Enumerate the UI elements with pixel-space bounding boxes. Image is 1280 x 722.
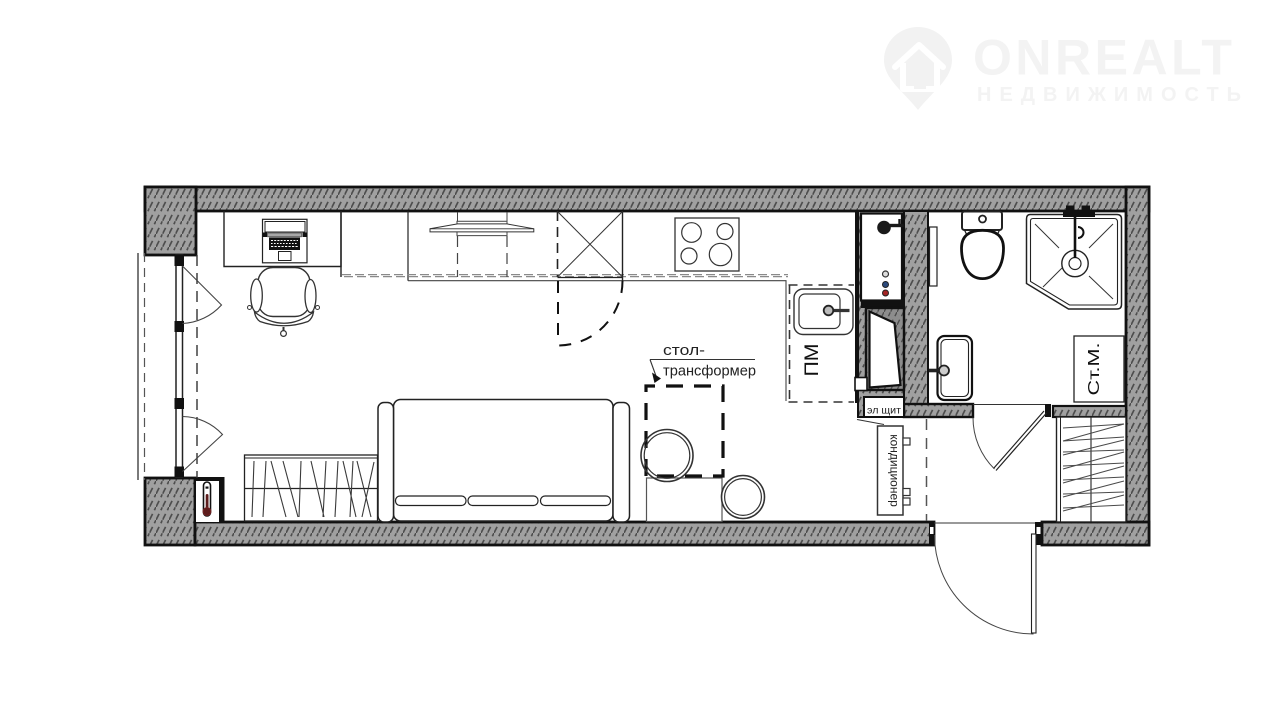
svg-text:трансформер: трансформер xyxy=(663,364,756,380)
svg-text:НЕДВИЖИМОСТЬ: НЕДВИЖИМОСТЬ xyxy=(977,84,1249,106)
svg-text:ПМ: ПМ xyxy=(802,344,823,377)
svg-text:эл щит: эл щит xyxy=(867,405,901,417)
svg-text:ONREALT: ONREALT xyxy=(973,30,1235,86)
svg-text:Ст.М.: Ст.М. xyxy=(1086,343,1103,396)
svg-text:стол-: стол- xyxy=(663,343,705,359)
svg-text:кондиционер: кондиционер xyxy=(888,434,902,507)
